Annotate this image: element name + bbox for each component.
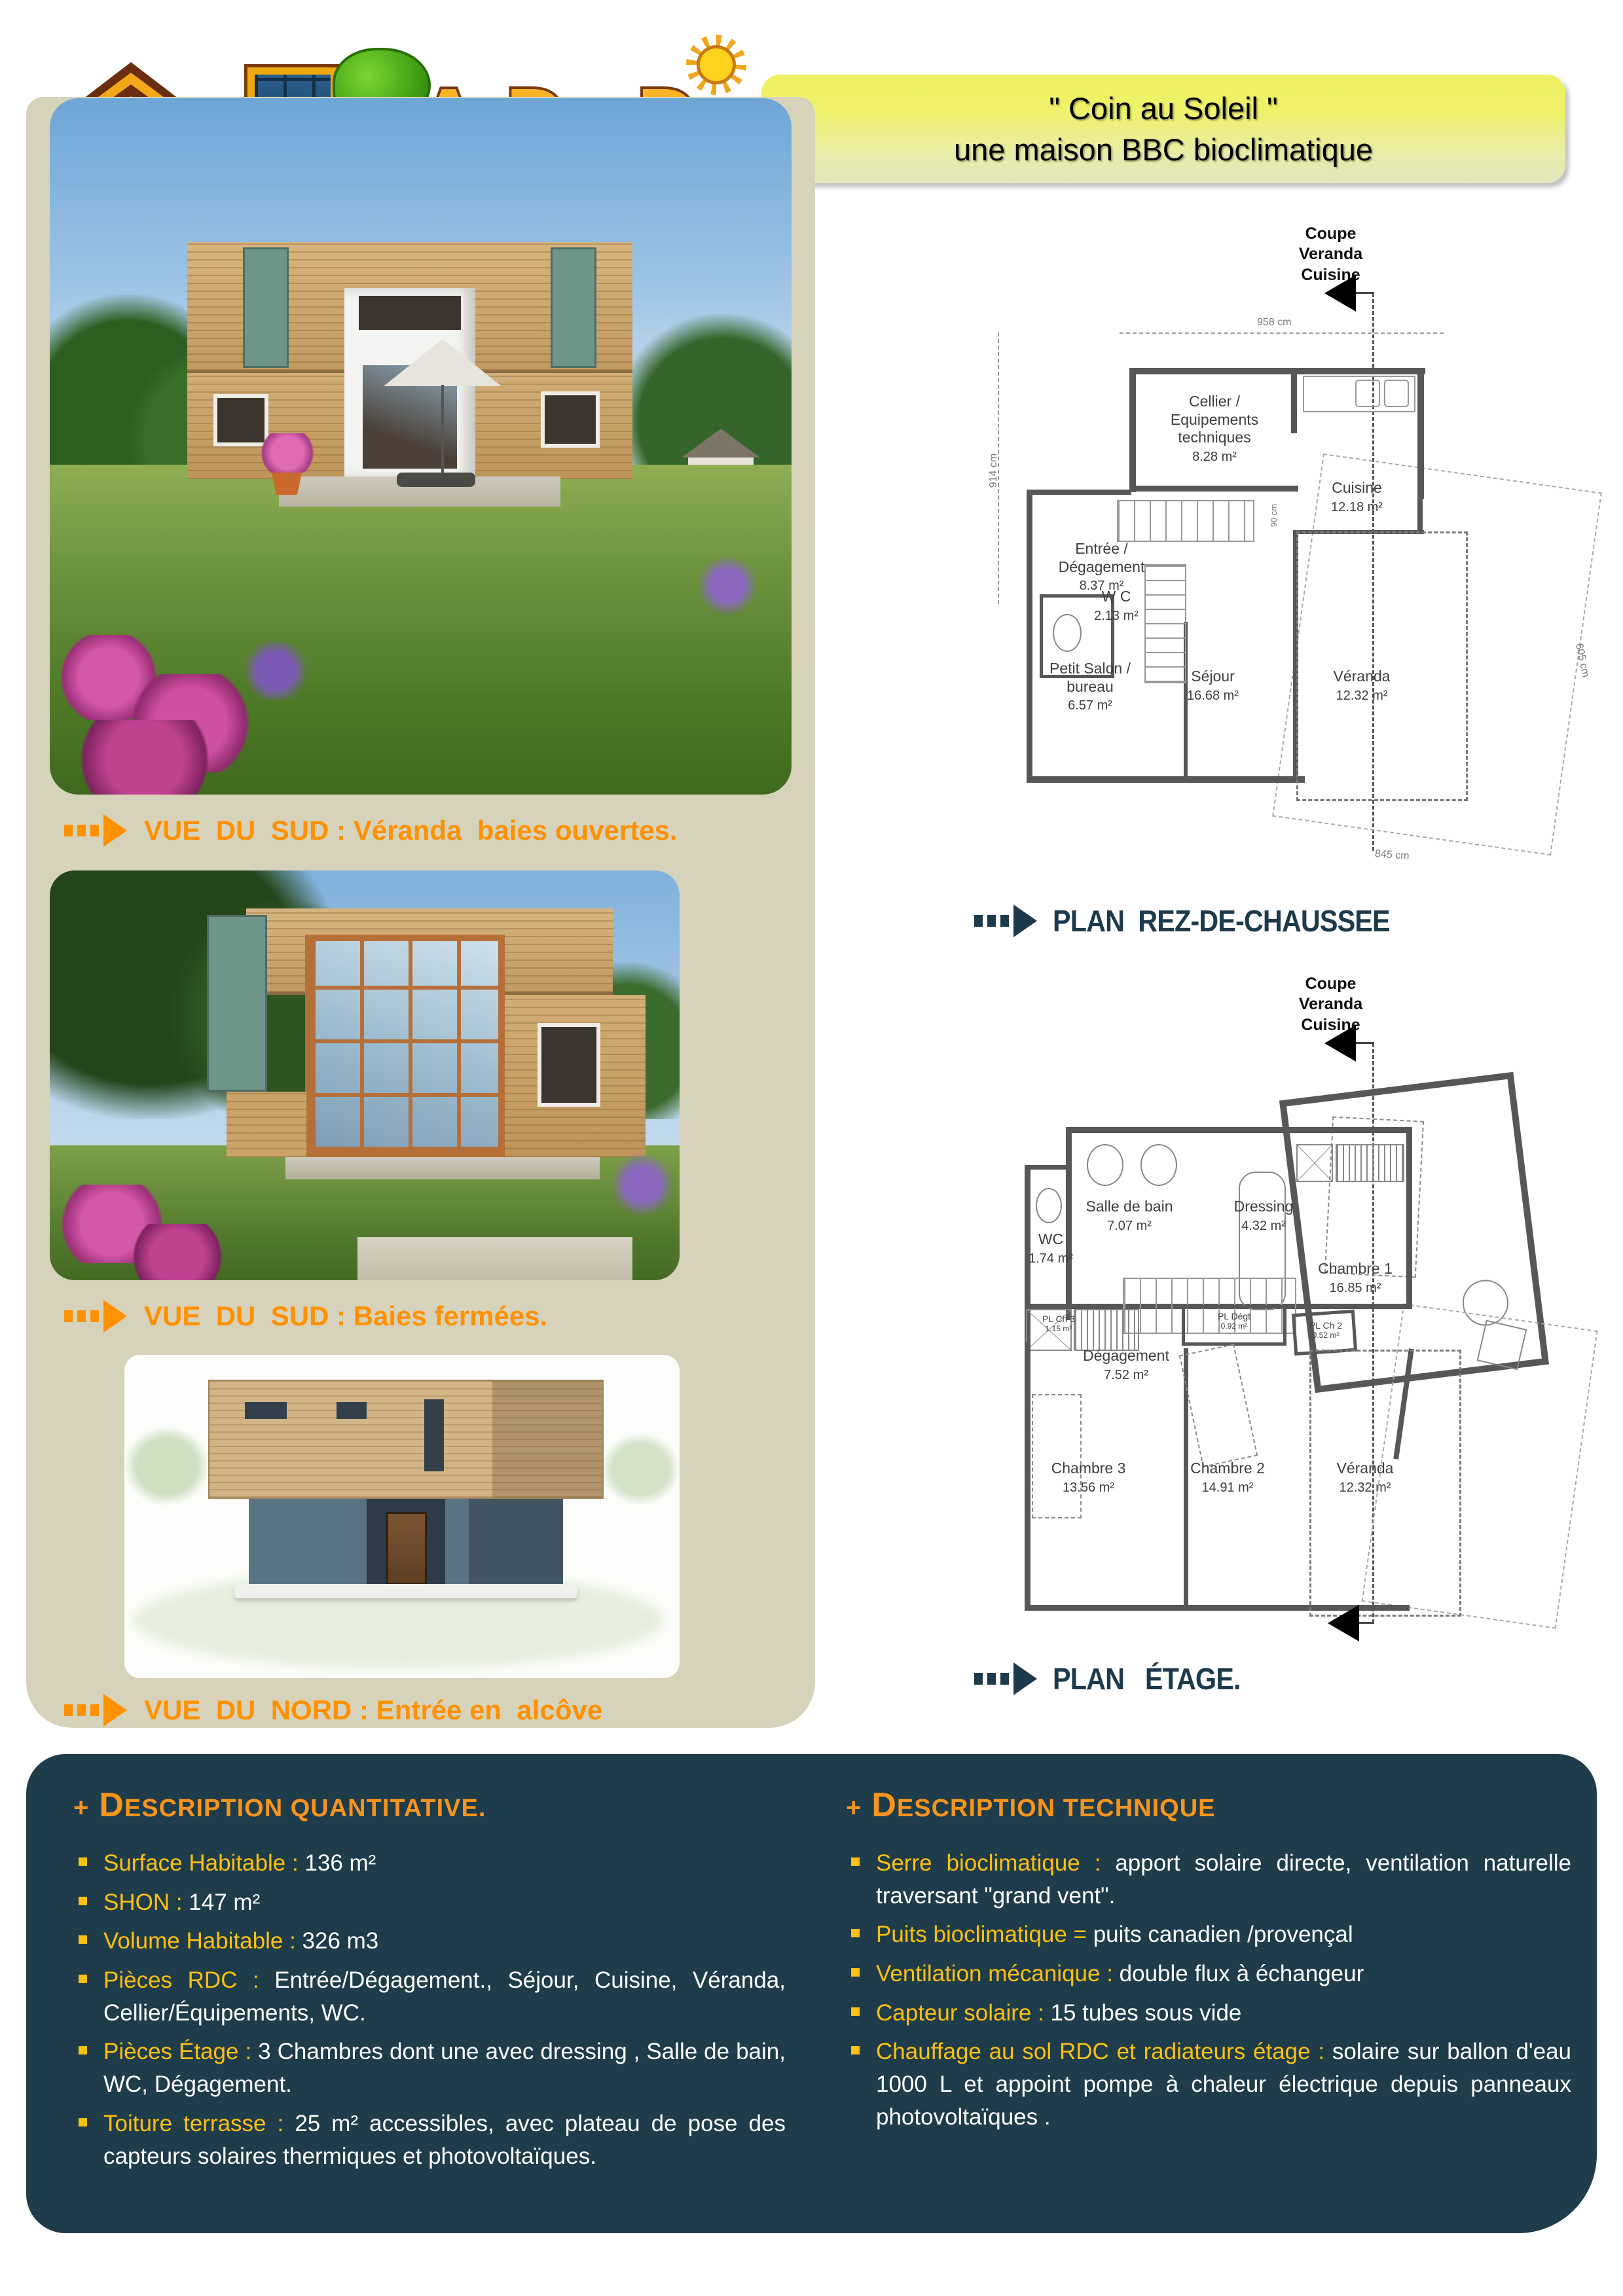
decor-val: puits canadien /provençal <box>1093 1922 1353 1947</box>
decor-lbl: Pièces Étage : <box>103 2039 258 2064</box>
description-panel: + DESCRIPTION QUANTITATIVE. Surface Habi… <box>26 1754 1597 2233</box>
decor-ra: 1.74 m² <box>1015 1251 1087 1266</box>
decor-ra: 12.32 m² <box>1303 1480 1427 1496</box>
decor-w <box>1417 368 1424 499</box>
decor <box>974 915 983 927</box>
caption-photo-1: VUE DU SUD : Véranda baies ouvertes. <box>64 814 678 847</box>
list-item: Serre bioclimatique : apport solaire dir… <box>846 1847 1571 1912</box>
decor-ra: 14.91 m² <box>1165 1480 1290 1496</box>
decor-ra: 6.57 m² <box>1028 698 1152 713</box>
room-label: Chambre 116.85 m² <box>1293 1260 1417 1296</box>
decor-bed <box>1179 1344 1258 1467</box>
decor-sc <box>698 550 757 622</box>
decor-w <box>1129 368 1136 492</box>
section-heading: DESCRIPTION TECHNIQUE <box>871 1785 1215 1825</box>
caption-photo-2: VUE DU SUD : Baies fermées. <box>64 1300 547 1333</box>
arrow-right-icon <box>974 1662 1037 1695</box>
decor-desc-list: Serre bioclimatique : apport solaire dir… <box>846 1847 1571 2134</box>
decor-rn: Entrée / Dégagement <box>1038 540 1165 576</box>
decor-tri <box>1013 1662 1037 1695</box>
decor <box>90 1704 99 1716</box>
bullet-icon <box>851 2007 860 2016</box>
decor-sc <box>613 1145 672 1224</box>
decor-sc <box>234 1584 577 1598</box>
decor-desc-head-row: + DESCRIPTION QUANTITATIVE. <box>73 1785 786 1825</box>
decor-w <box>1129 486 1298 492</box>
decor-tri <box>1013 905 1037 937</box>
decor-w <box>1417 499 1423 533</box>
decor-w <box>1027 490 1131 495</box>
decor <box>987 1673 996 1685</box>
decor-rn: PL Ch 2 <box>1296 1321 1355 1331</box>
decor-rn: Chambre 2 <box>1165 1460 1290 1478</box>
decor-sc <box>69 720 220 795</box>
decor <box>77 1310 86 1322</box>
caption-text: VUE DU SUD : Véranda baies ouvertes. <box>144 815 678 846</box>
decor-sc <box>124 1427 210 1505</box>
room-label: Dégagement7.52 m² <box>1064 1347 1188 1383</box>
plus-icon: + <box>846 1793 861 1823</box>
decor-sc <box>551 247 596 368</box>
decor-sc <box>424 1399 444 1471</box>
decor-sc <box>541 391 600 448</box>
decor-val: 136 m² <box>304 1850 376 1876</box>
caption-plan-etage: PLAN ÉTAGE. <box>974 1661 1261 1696</box>
decor-sc <box>207 915 267 1092</box>
decor-desc-head-row: + DESCRIPTION TECHNIQUE <box>846 1785 1571 1825</box>
decor-rn: Séjour <box>1156 668 1270 686</box>
decor-w <box>1291 368 1297 433</box>
decor-ra: 1.15 m² <box>1029 1324 1088 1333</box>
decor-rn: Petit Salon / bureau <box>1028 660 1152 696</box>
decor-ra: 2.13 m² <box>1067 609 1165 624</box>
decor-thin <box>1384 380 1409 407</box>
decor-sc <box>359 296 461 330</box>
photo-north-alcove <box>124 1355 680 1678</box>
dimension-label: 914 cm <box>988 454 1000 488</box>
bullet-icon <box>851 1968 860 1977</box>
room-label: Salle de bain7.07 m² <box>1067 1198 1192 1234</box>
bullet-icon <box>79 1935 87 1944</box>
room-label: Entrée / Dégagement8.37 m² <box>1038 540 1165 594</box>
decor <box>64 1310 73 1322</box>
list-item: Chauffage au sol RDC et radiateurs étage… <box>846 2036 1571 2133</box>
decor-ra: 0.92 m² <box>1188 1321 1280 1331</box>
list-item: Ventilation mécanique : double flux à éc… <box>846 1958 1571 1990</box>
decor-desc-list: Surface Habitable : 136 m² SHON : 147 m²… <box>73 1847 786 2172</box>
decor-hatch <box>1336 1144 1404 1182</box>
decor-oval <box>1036 1188 1062 1223</box>
room-label: Véranda12.32 m² <box>1303 668 1421 704</box>
decor-lbl: Serre bioclimatique : <box>876 1850 1115 1876</box>
decor-val: 326 m3 <box>302 1928 379 1954</box>
decor-rn: PL Ch 3 <box>1029 1314 1088 1324</box>
list-item: Pièces Étage : 3 Chambres dont une avec … <box>73 2036 786 2100</box>
decor-rn: Dégagement <box>1064 1347 1188 1365</box>
photo-south-open <box>50 98 792 795</box>
decor-sc <box>187 242 632 524</box>
floor-plan-rdc: 958 cm 914 cm 605 cm 845 cm 90 cm <box>989 314 1611 884</box>
bullet-icon <box>79 1897 87 1905</box>
decor-sc <box>397 473 475 487</box>
decor-sc <box>207 908 652 1190</box>
list-item: Capteur solaire : 15 tubes sous vide <box>846 1997 1571 2030</box>
arrow-right-icon <box>64 814 127 847</box>
decor-rn: W C <box>1067 588 1165 606</box>
decor-lbl: Pièces RDC : <box>103 1967 274 1993</box>
room-label: Chambre 214.91 m² <box>1165 1460 1290 1496</box>
decor <box>64 825 73 836</box>
room-label: Véranda12.32 m² <box>1303 1460 1427 1496</box>
decor <box>974 1673 983 1685</box>
section-line <box>1356 1042 1374 1044</box>
room-label: Chambre 313.56 m² <box>1028 1460 1149 1496</box>
project-title: " Coin au Soleil " <box>1049 88 1278 129</box>
decor-lbl: Surface Habitable : <box>103 1850 304 1876</box>
photo-south-closed <box>50 870 680 1280</box>
room-label: Séjour16.68 m² <box>1156 668 1270 704</box>
decor-rn: Cellier / Equipements techniques <box>1156 393 1273 447</box>
section-arrow-icon <box>1328 1605 1359 1641</box>
description-quantitative: + DESCRIPTION QUANTITATIVE. Surface Habi… <box>73 1785 786 2179</box>
decor-rn: Salle de bain <box>1067 1198 1192 1216</box>
decor-rn: Chambre 3 <box>1028 1460 1149 1478</box>
decor-ra: 7.52 m² <box>1064 1368 1188 1383</box>
decor <box>90 1310 99 1322</box>
bullet-icon <box>851 2046 860 2054</box>
decor-bed <box>1032 1394 1082 1518</box>
decor-sc <box>258 433 317 473</box>
decor-lbl: Chauffage au sol RDC et radiateurs étage… <box>876 2039 1332 2064</box>
decor-sc <box>441 385 444 475</box>
decor-ra: 8.28 m² <box>1156 450 1273 465</box>
decor-lbl: SHON : <box>103 1890 189 1915</box>
brochure-page: A D i D " Coin au Soleil " une maison BB… <box>0 0 1623 2296</box>
decor-vdash <box>1296 531 1468 801</box>
decor-rn: Chambre 1 <box>1293 1260 1417 1278</box>
decor-val: 15 tubes sous vide <box>1051 2000 1242 2026</box>
room-label: PL Ch 20.52 m² <box>1296 1321 1355 1340</box>
decor-lbl: Toiture terrasse : <box>103 2111 295 2136</box>
decor-thin <box>1355 380 1380 407</box>
list-item: Pièces RDC : Entrée/Dégagement., Séjour,… <box>73 1964 786 2029</box>
room-label: PL Ch 31.15 m² <box>1029 1314 1088 1333</box>
decor-w <box>1129 368 1425 374</box>
decor-sc <box>386 1512 427 1585</box>
decor <box>1000 915 1009 927</box>
photo-panel: VUE DU SUD : Véranda baies ouvertes. <box>26 97 815 1728</box>
arrow-right-icon <box>64 1694 127 1727</box>
decor-w <box>1027 776 1305 783</box>
decor-sc <box>305 935 505 1157</box>
list-item: Volume Habitable : 326 m3 <box>73 1925 786 1958</box>
decor-rn: Véranda <box>1303 1460 1427 1478</box>
bullet-icon <box>79 1975 87 1983</box>
decor-stairsH <box>1117 500 1254 542</box>
bullet-icon <box>79 1857 87 1866</box>
room-label: Dressing4.32 m² <box>1205 1198 1322 1234</box>
decor-ra: 12.18 m² <box>1300 500 1414 515</box>
section-line <box>1356 292 1374 294</box>
dimension-label: 845 cm <box>1374 848 1410 863</box>
decor-lbl: Ventilation mécanique : <box>876 1961 1120 1986</box>
decor-sc <box>245 1402 287 1419</box>
decor-w <box>1027 490 1032 783</box>
decor-sc <box>337 1402 367 1419</box>
decor-sc <box>240 641 312 700</box>
floor-plan-etage: Salle de bain7.07 m² WC1.74 m² Dressing4… <box>989 1067 1611 1630</box>
decor-ra: 16.68 m² <box>1156 689 1270 704</box>
decor-ra: 12.32 m² <box>1303 689 1421 704</box>
decor-rn: Dressing <box>1205 1198 1322 1216</box>
decor-val: 147 m² <box>189 1890 260 1915</box>
description-technique: + DESCRIPTION TECHNIQUE Serre bioclimati… <box>846 1785 1571 2140</box>
decor-rn: WC <box>1015 1230 1087 1249</box>
caption-text: VUE DU SUD : Baies fermées. <box>144 1300 547 1332</box>
decor <box>64 1704 73 1716</box>
decor-sc <box>208 1380 604 1619</box>
decor-rn: Cuisine <box>1300 479 1414 497</box>
decor-tri <box>103 814 127 847</box>
room-label: W C2.13 m² <box>1067 588 1165 624</box>
dimension-label: 90 cm <box>1269 504 1279 527</box>
project-subtitle: une maison BBC bioclimatique <box>954 129 1373 170</box>
decor-sc <box>538 1023 600 1107</box>
decor-tri <box>103 1300 127 1333</box>
decor-oval <box>1140 1144 1177 1186</box>
plus-icon: + <box>73 1793 88 1823</box>
decor <box>90 825 99 836</box>
decor-ra: 16.85 m² <box>1293 1281 1417 1296</box>
room-label: Cuisine12.18 m² <box>1300 479 1414 515</box>
arrow-right-icon <box>974 905 1037 937</box>
caption-text: VUE DU NORD : Entrée en alcôve <box>144 1695 602 1726</box>
decor-sc <box>208 1380 604 1499</box>
title-banner: " Coin au Soleil " une maison BBC biocli… <box>761 75 1565 183</box>
bullet-icon <box>79 2118 87 2126</box>
bullet-icon <box>851 1929 860 1937</box>
decor-tri <box>103 1694 127 1727</box>
decor-w <box>1025 1165 1070 1170</box>
decor-sc <box>357 1237 632 1280</box>
room-label: Cellier / Equipements techniques8.28 m² <box>1156 393 1273 465</box>
arrow-right-icon <box>64 1300 127 1333</box>
caption-text: PLAN REZ-DE-CHAUSSEE <box>1053 903 1390 939</box>
list-item: Toiture terrasse : 25 m² accessibles, av… <box>73 2108 786 2172</box>
decor-sc <box>227 1092 306 1157</box>
list-item: Puits bioclimatique = puits canadien /pr… <box>846 1918 1571 1951</box>
room-label: Petit Salon / bureau6.57 m² <box>1028 660 1152 713</box>
decor-sc <box>601 1433 680 1505</box>
section-line <box>1359 1622 1374 1624</box>
room-label: PL Dégt0.92 m² <box>1188 1312 1280 1331</box>
caption-text: PLAN ÉTAGE. <box>1053 1661 1241 1696</box>
decor-w <box>1066 1127 1410 1133</box>
decor-rn: PL Dégt <box>1188 1312 1280 1321</box>
decor-sc <box>285 1157 600 1179</box>
bullet-icon <box>851 1857 860 1866</box>
decor-lbl: Capteur solaire : <box>876 2000 1051 2026</box>
room-label: WC1.74 m² <box>1015 1230 1087 1266</box>
section-heading: DESCRIPTION QUANTITATIVE. <box>99 1785 486 1825</box>
section-arrow-icon <box>1324 1025 1356 1062</box>
decor <box>987 915 996 927</box>
decor-ra: 0.52 m² <box>1296 1331 1355 1340</box>
decor <box>77 825 86 836</box>
decor-sc <box>128 1224 227 1280</box>
caption-plan-rdc: PLAN REZ-DE-CHAUSSEE <box>974 903 1427 939</box>
list-item: SHON : 147 m² <box>73 1886 786 1919</box>
section-arrow-icon <box>1324 275 1356 312</box>
decor-ra: 4.32 m² <box>1205 1219 1322 1234</box>
decor-oval <box>1087 1144 1123 1186</box>
decor-lbl: Volume Habitable : <box>103 1928 302 1954</box>
decor-xbox <box>1296 1144 1333 1182</box>
decor-thin <box>1120 332 1444 334</box>
dimension-label: 958 cm <box>1257 317 1291 329</box>
decor <box>1000 1673 1009 1685</box>
bullet-icon <box>79 2046 87 2054</box>
decor-lbl: Puits bioclimatique = <box>876 1922 1093 1947</box>
decor-sc <box>243 247 289 368</box>
decor-rn: Véranda <box>1303 668 1421 686</box>
list-item: Surface Habitable : 136 m² <box>73 1847 786 1880</box>
decor <box>77 1704 86 1716</box>
decor-w <box>1025 1605 1188 1611</box>
caption-photo-3: VUE DU NORD : Entrée en alcôve <box>64 1694 602 1727</box>
decor-val: double flux à échangeur <box>1120 1961 1364 1986</box>
decor-ra: 13.56 m² <box>1028 1480 1149 1496</box>
